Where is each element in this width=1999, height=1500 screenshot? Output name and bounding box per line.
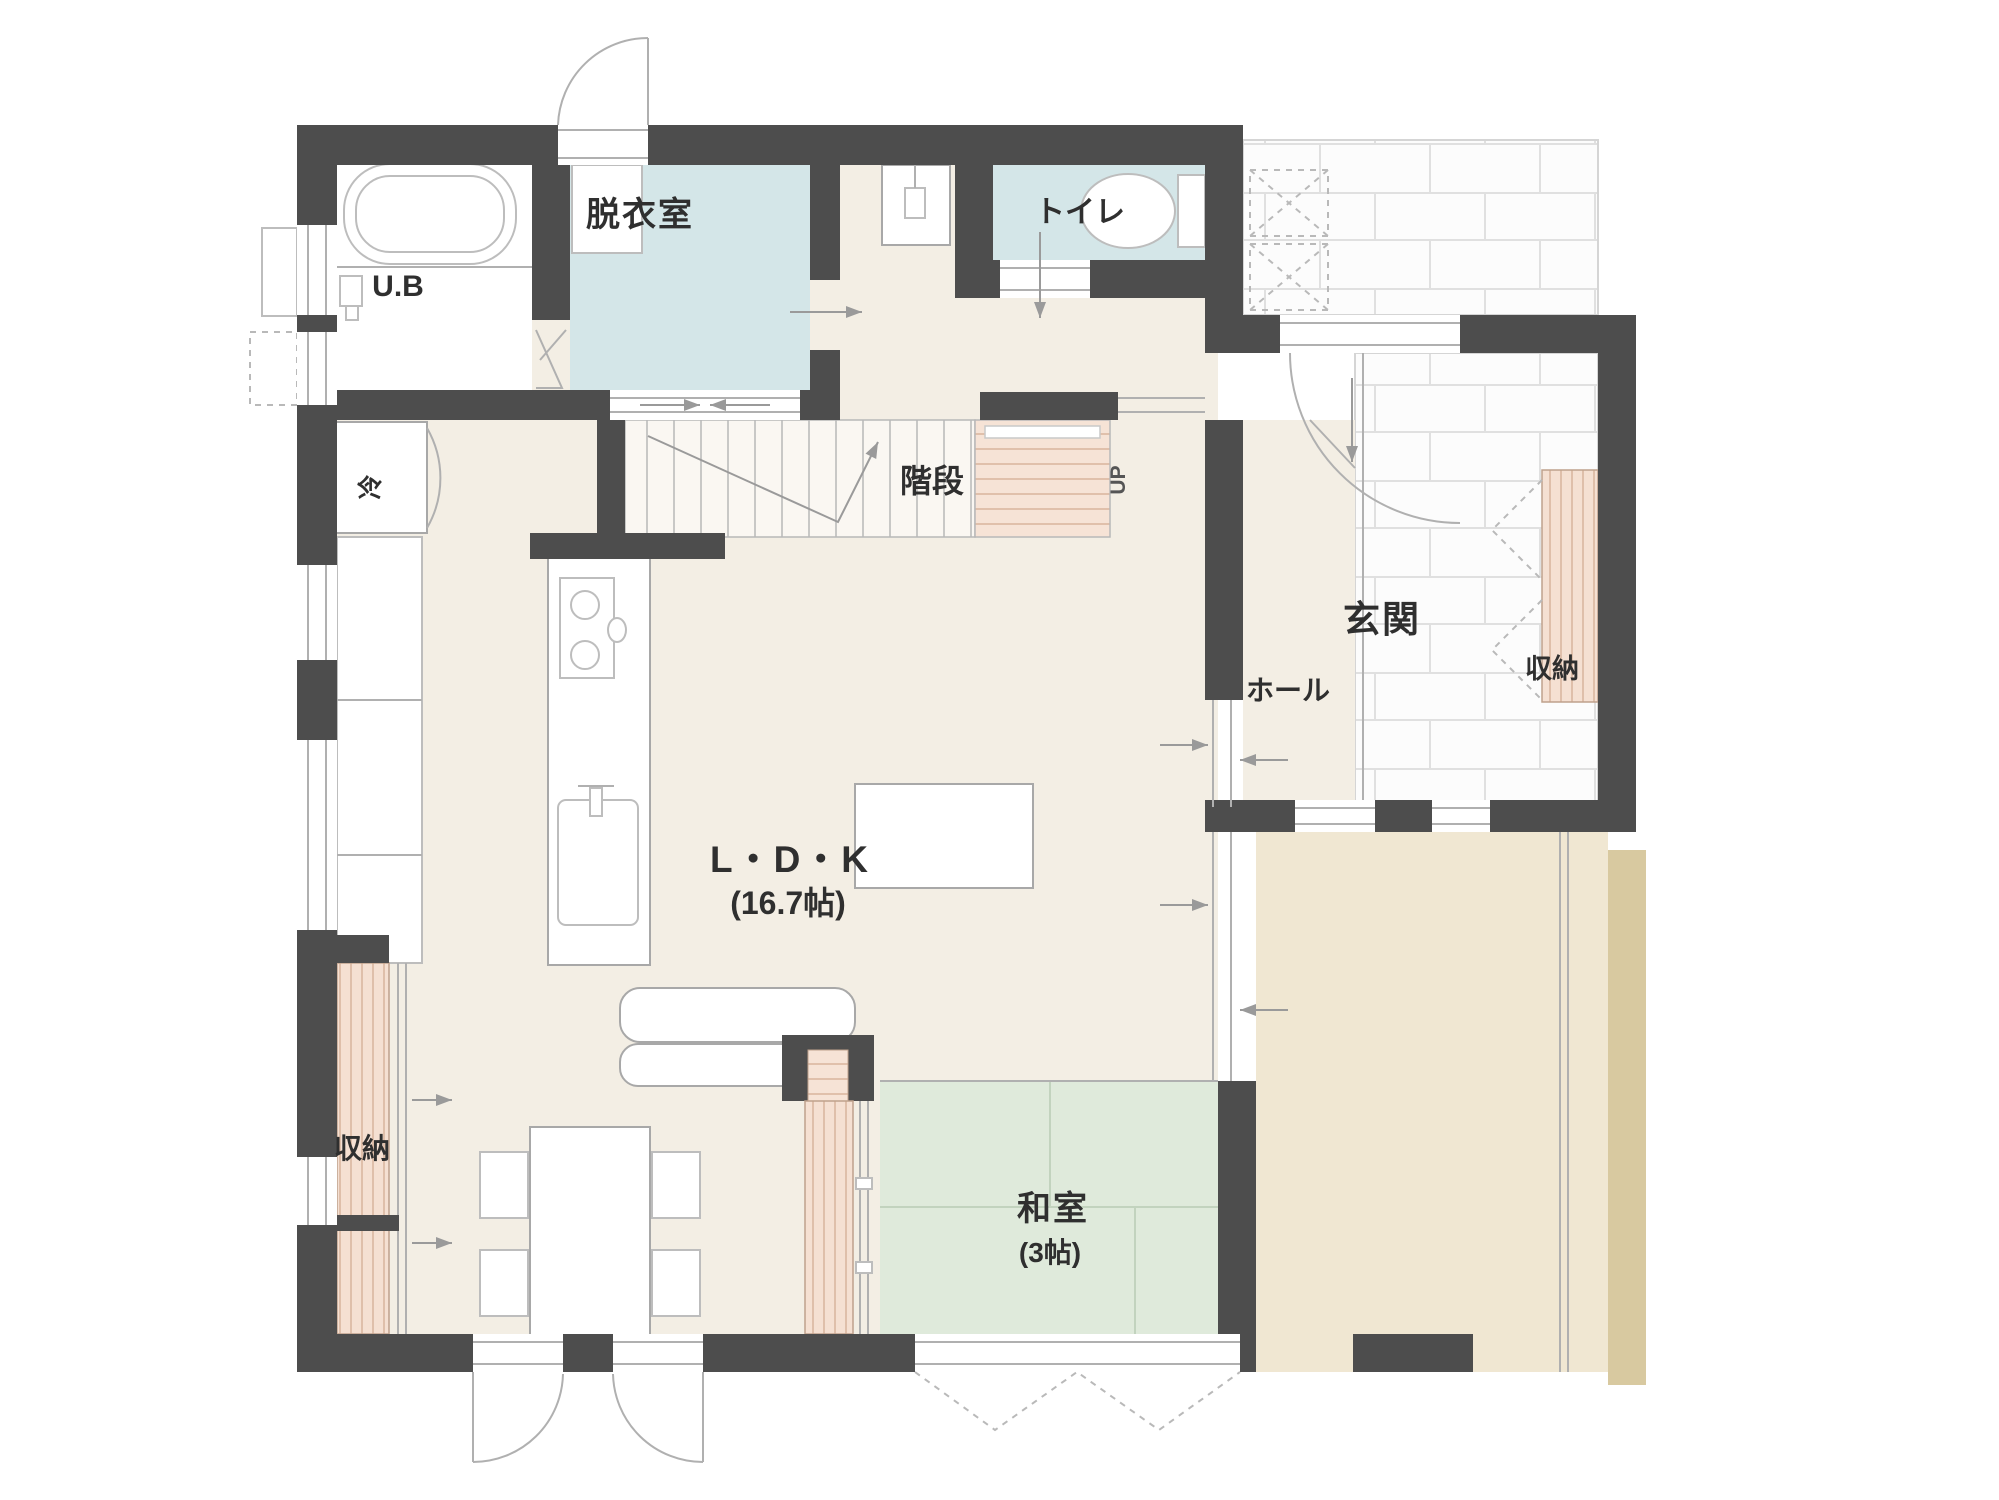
wall-tatami-right bbox=[1218, 1081, 1256, 1334]
toilet-tank bbox=[1178, 175, 1205, 247]
wall-right bbox=[1598, 315, 1636, 832]
wall-toilet-bottom-l bbox=[955, 260, 1000, 298]
label-ldk-size: (16.7帖) bbox=[730, 885, 846, 921]
wall-hall-divider bbox=[1205, 420, 1243, 700]
window-kitchen bbox=[297, 332, 337, 405]
divider-wood-top bbox=[808, 1050, 848, 1101]
divider-wood-strip bbox=[805, 1101, 853, 1334]
label-hall: ホール bbox=[1246, 675, 1330, 706]
burner-2 bbox=[571, 641, 599, 669]
wall-ub-dressing bbox=[532, 163, 570, 320]
label-entrance-storage: 収納 bbox=[1525, 653, 1579, 684]
washbasin-bowl bbox=[905, 188, 925, 218]
dining-chair-2 bbox=[480, 1250, 528, 1316]
porch-tiles bbox=[1243, 140, 1598, 315]
label-washitsu: 和室 bbox=[1017, 1189, 1089, 1228]
label-entrance: 玄関 bbox=[1343, 599, 1421, 640]
wall-dressing-stub bbox=[810, 350, 840, 390]
wall-bottom-deck bbox=[1353, 1334, 1473, 1372]
wall-entrance-left bbox=[1205, 315, 1280, 353]
wall-dressing-bottom-l bbox=[297, 390, 610, 420]
shower-tap bbox=[346, 306, 358, 320]
door-top-exterior bbox=[558, 38, 648, 165]
wall-hall-bottom-m bbox=[1375, 800, 1432, 832]
wood-deck bbox=[1256, 832, 1608, 1372]
burner-small bbox=[608, 618, 626, 642]
wall-entrance-right bbox=[1460, 315, 1598, 353]
window-dining bbox=[297, 1157, 337, 1225]
window-ldk-1 bbox=[297, 565, 337, 660]
wall-corridor-hall bbox=[980, 392, 1118, 420]
divider-handle-2 bbox=[856, 1262, 872, 1273]
counter-top-sliver bbox=[985, 426, 1100, 438]
deck-shadow-band bbox=[1608, 850, 1646, 1385]
floor-plan-canvas: U.B 脱衣室 トイレ 階段 UP 玄関 ホール 収納 L・D・K (16.7帖… bbox=[0, 0, 1999, 1500]
label-washitsu-size: (3帖) bbox=[1019, 1237, 1081, 1268]
sofa-seat bbox=[620, 988, 855, 1042]
wall-kitchen-stub bbox=[530, 533, 725, 559]
kitchen-window-frame bbox=[250, 332, 297, 405]
ub-window-frame bbox=[262, 228, 297, 316]
kitchen-sink bbox=[558, 800, 638, 925]
wall-storage-top bbox=[297, 935, 389, 963]
wall-top bbox=[297, 125, 1205, 165]
window-ldk-2 bbox=[297, 740, 337, 930]
bathtub-inner bbox=[356, 176, 504, 252]
burner-1 bbox=[571, 591, 599, 619]
tv-board bbox=[855, 784, 1033, 888]
wall-dressing-corridor bbox=[810, 163, 840, 280]
door-dressing-slide bbox=[610, 390, 800, 420]
wall-dressing-bottom-r bbox=[800, 390, 840, 420]
stairs bbox=[625, 420, 1110, 537]
label-fridge: 冷 bbox=[356, 474, 385, 499]
dining-chair-4 bbox=[652, 1250, 700, 1316]
label-up: UP bbox=[1107, 465, 1130, 494]
sink-faucet bbox=[590, 788, 602, 816]
dining-chair-3 bbox=[652, 1152, 700, 1218]
wall-hall-bottom-l bbox=[1205, 800, 1295, 832]
door-terrace-left bbox=[473, 1334, 563, 1462]
kitchen-back-counter bbox=[337, 537, 422, 963]
hall-floor bbox=[1243, 420, 1355, 802]
dining-chair-1 bbox=[480, 1152, 528, 1218]
shower-fixture bbox=[340, 276, 362, 306]
label-ldk: L・D・K bbox=[710, 839, 870, 880]
label-kitchen-storage: 収納 bbox=[334, 1132, 390, 1164]
wall-hall-bottom-r bbox=[1490, 800, 1636, 832]
floor-plan: U.B 脱衣室 トイレ 階段 UP 玄関 ホール 収納 L・D・K (16.7帖… bbox=[0, 0, 1999, 1500]
dining-table bbox=[530, 1127, 650, 1343]
label-stairs: 階段 bbox=[900, 463, 964, 499]
window-ub bbox=[297, 225, 337, 315]
wall-stairs-left bbox=[597, 420, 625, 537]
door-terrace-right bbox=[613, 1334, 703, 1462]
divider-handle-1 bbox=[856, 1178, 872, 1189]
wall-storage-mid bbox=[337, 1215, 399, 1231]
label-dressing: 脱衣室 bbox=[586, 195, 694, 234]
label-toilet: トイレ bbox=[1035, 196, 1125, 229]
window-tatami-folding bbox=[915, 1334, 1240, 1430]
label-ub: U.B bbox=[372, 270, 424, 303]
